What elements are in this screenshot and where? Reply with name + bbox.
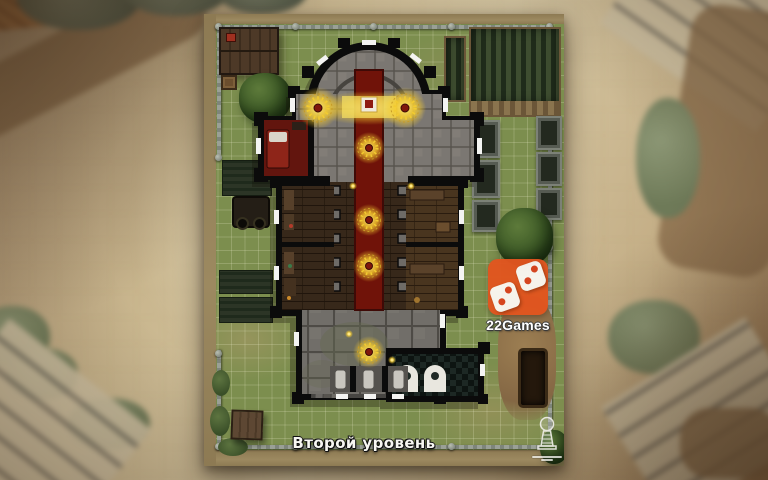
die-pip xyxy=(523,276,532,285)
publisher-logo: 22Games xyxy=(479,259,557,333)
die-pip xyxy=(504,286,513,295)
die-icon xyxy=(514,259,547,292)
pillow xyxy=(269,132,287,142)
figurine-icon xyxy=(534,416,560,450)
artist-watermark xyxy=(530,416,564,462)
watermark-text-line xyxy=(541,459,553,461)
moss-right xyxy=(636,98,700,218)
die-pip xyxy=(530,265,539,274)
logo-text: 22Games xyxy=(479,317,557,333)
die-icon xyxy=(488,280,521,313)
screenshot-stage: 22Games Второй уровень xyxy=(0,0,768,480)
right-aisle-room xyxy=(406,186,458,310)
map-title: Второй уровень xyxy=(259,434,469,452)
cathedral-building xyxy=(204,14,564,466)
watermark-text-line xyxy=(532,456,562,458)
cliff-bottom-right xyxy=(680,408,768,478)
dice-logo-icon xyxy=(488,259,548,315)
vestibule xyxy=(330,366,408,392)
die-pip xyxy=(497,297,506,306)
battle-map-poster: 22Games Второй уровень xyxy=(204,14,564,466)
